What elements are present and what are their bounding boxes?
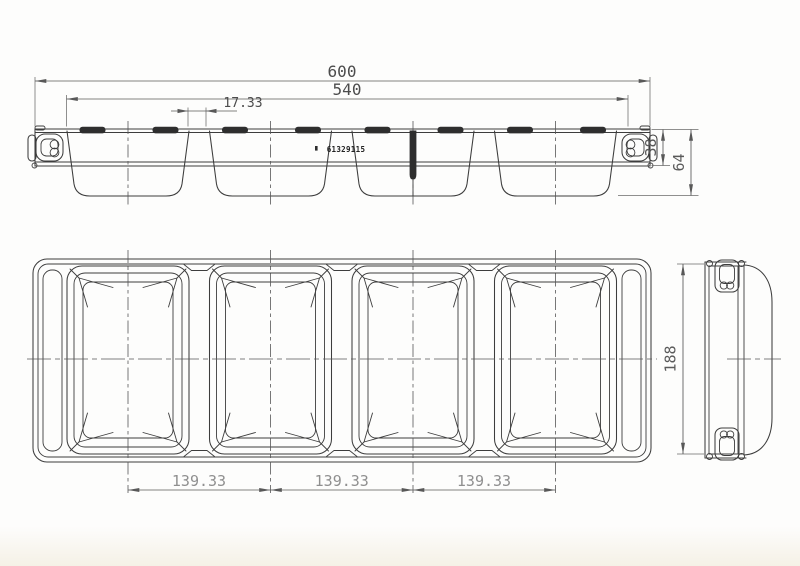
end-top-handle xyxy=(707,260,745,292)
basin xyxy=(210,121,332,208)
pitch-label-1: 139.33 xyxy=(172,472,226,490)
dimension-compartment-pitch: 139.33 139.33 139.33 xyxy=(128,472,556,490)
dimension-divider-gap: 17.33 xyxy=(171,96,263,127)
side-basins xyxy=(67,121,617,208)
part-number-label: 61329115 xyxy=(327,145,366,154)
basin xyxy=(67,121,189,208)
rim-height-label: 38 xyxy=(642,138,660,156)
pitch-label-3: 139.33 xyxy=(457,472,511,490)
basin xyxy=(495,121,617,208)
dimension-overall-depth: 188 xyxy=(662,264,705,454)
technical-drawing: 61329115 600 540 17.33 xyxy=(0,0,800,566)
overall-length-label: 600 xyxy=(328,62,357,81)
divider-gap-label: 17.33 xyxy=(223,96,262,111)
dimension-inner-length: 540 xyxy=(67,80,629,127)
part-number-tick xyxy=(315,146,318,151)
overall-depth-label: 188 xyxy=(662,345,680,372)
side-elevation-view: 61329115 600 540 17.33 xyxy=(28,62,699,208)
end-bottom-handle xyxy=(707,428,745,460)
plan-view: 139.33 139.33 139.33 xyxy=(27,250,657,493)
pitch-label-2: 139.33 xyxy=(315,472,369,490)
end-view: 188 xyxy=(662,260,782,460)
drawing-sheet: 61329115 600 540 17.33 xyxy=(0,0,800,566)
center-pin xyxy=(410,131,417,180)
left-end-panel xyxy=(43,270,62,451)
end-profile-curve xyxy=(744,265,772,455)
right-end-panel xyxy=(622,270,641,451)
tray-outline xyxy=(33,259,651,462)
overall-height-label: 64 xyxy=(670,153,688,171)
divider-bumps xyxy=(184,265,500,457)
inner-length-label: 540 xyxy=(333,80,362,99)
